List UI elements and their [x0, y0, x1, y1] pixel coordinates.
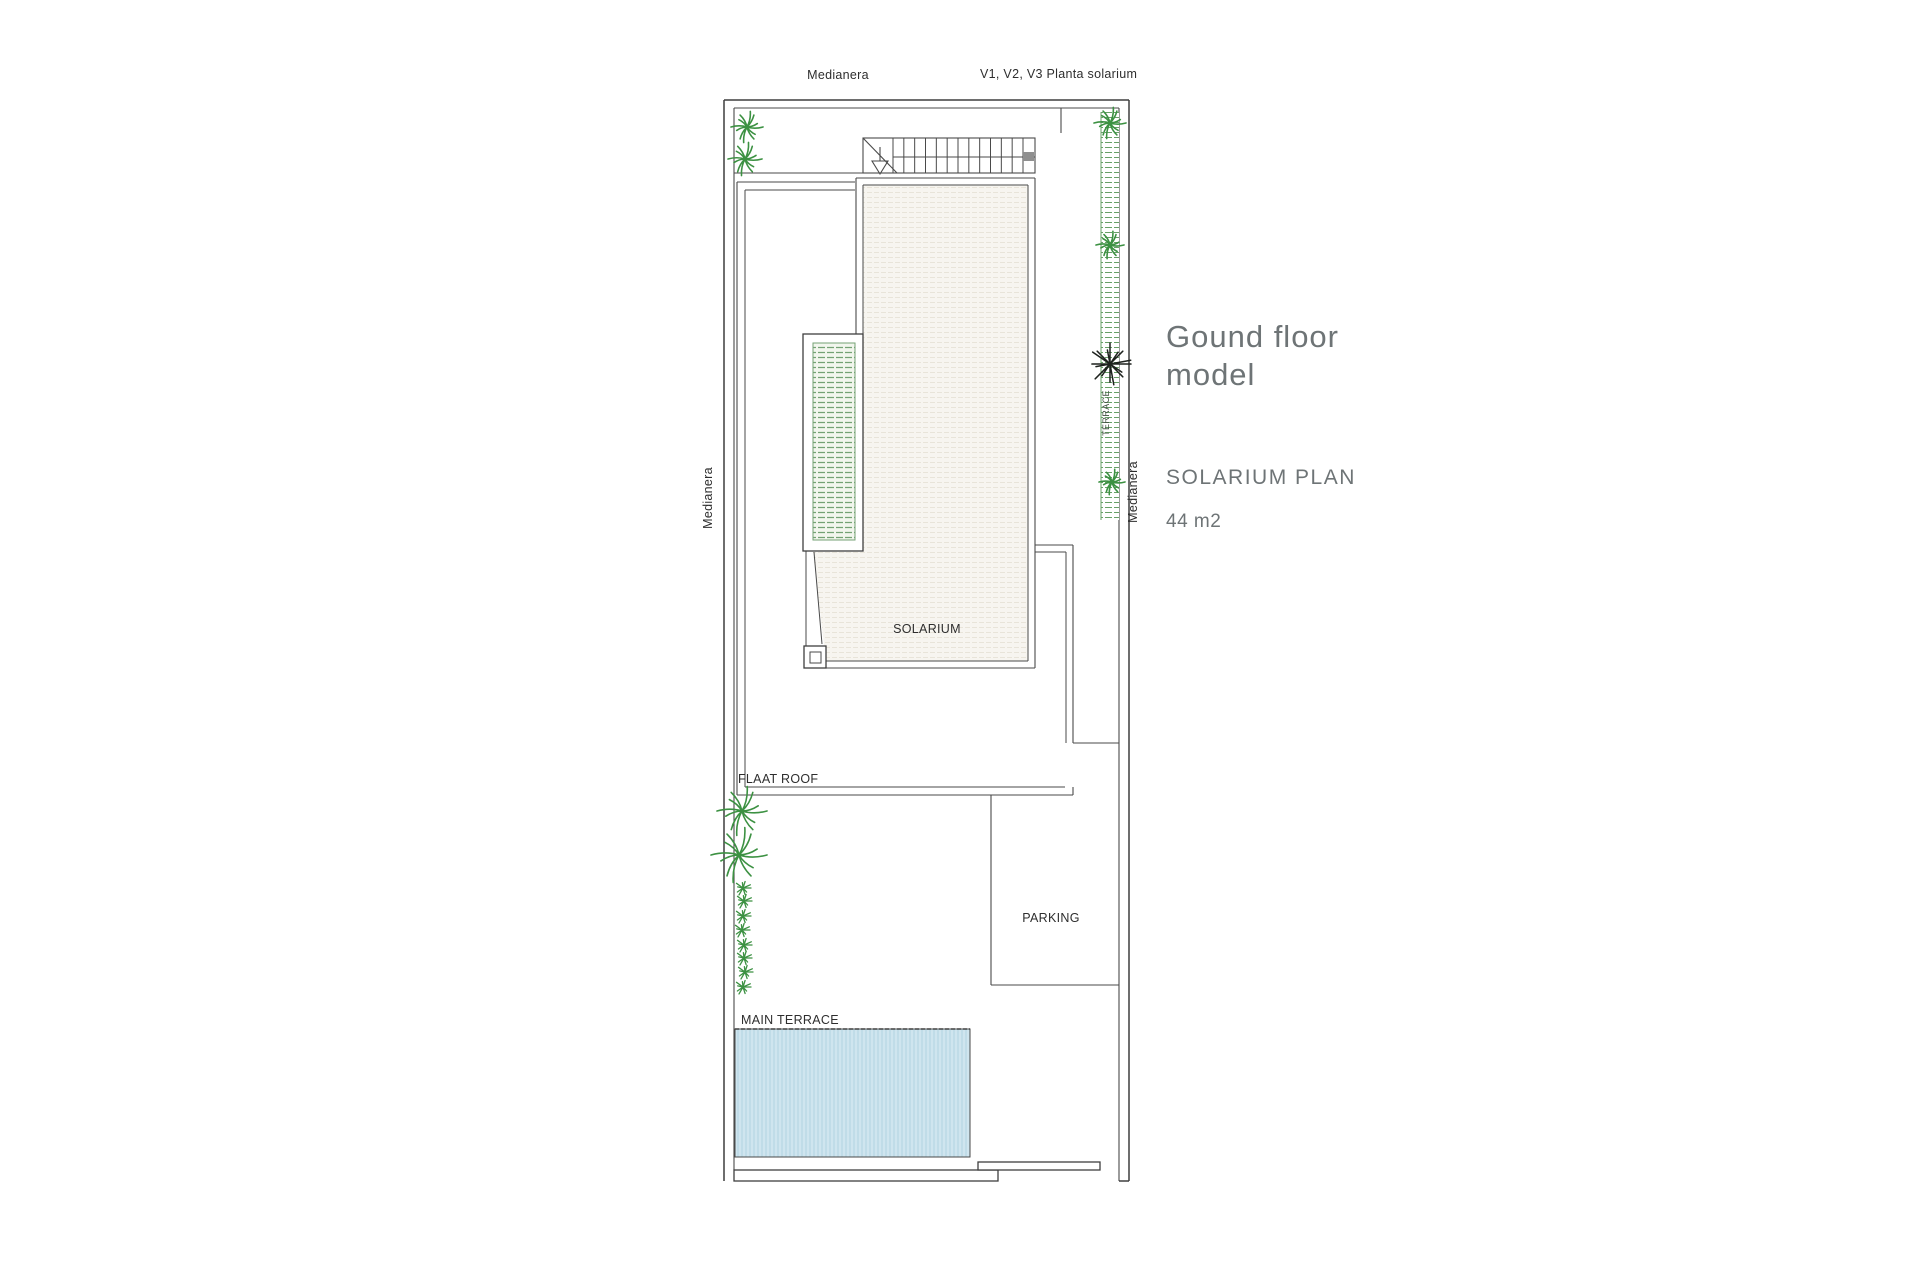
small-plant-icon [738, 939, 753, 952]
label-parking: PARKING [1022, 911, 1079, 925]
label-flat-roof: FLAAT ROOF [738, 772, 818, 786]
palm-plant-icon [731, 111, 763, 142]
page-title-line1: Gound floor [1166, 318, 1339, 356]
staircase [863, 138, 1035, 174]
small-plant-icon [736, 924, 751, 937]
page-title: Gound floor model [1166, 318, 1339, 394]
label-medianera-left: Medianera [701, 467, 715, 529]
label-windows: V1, V2, V3 Planta solarium [980, 67, 1137, 81]
label-solarium: SOLARIUM [893, 622, 961, 636]
side-terrace-strip [1101, 112, 1119, 520]
label-medianera-right: Medianera [1126, 461, 1140, 523]
swimming-pool [735, 1029, 970, 1157]
label-main-terrace: MAIN TERRACE [741, 1013, 839, 1027]
floor-plan-drawing: Medianera V1, V2, V3 Planta solarium Med… [0, 0, 1920, 1280]
parking-outline [991, 795, 1119, 985]
page-title-line2: model [1166, 356, 1339, 394]
floor-plan-page: Medianera V1, V2, V3 Planta solarium Med… [0, 0, 1920, 1280]
bottom-walls [734, 1162, 1100, 1181]
label-medianera-top: Medianera [807, 68, 869, 82]
label-terrace: TERRACE [1101, 390, 1111, 436]
small-plant-icon [737, 882, 752, 895]
small-plant-icon [738, 895, 753, 908]
stair-landing-mark [1023, 152, 1034, 161]
small-plant-icon [739, 966, 754, 979]
planter-box [803, 334, 863, 551]
stair-treads [893, 138, 1023, 173]
corner-column [804, 646, 826, 668]
small-plant-icon [737, 981, 752, 994]
plan-area-value: 44 m2 [1166, 511, 1221, 533]
small-plant-icon [738, 952, 753, 965]
palm-plant-icon [711, 828, 767, 883]
stair-direction-arrow [872, 161, 888, 174]
small-plant-icon [737, 910, 752, 923]
plan-subtitle: SOLARIUM PLAN [1166, 466, 1356, 490]
palm-plant-icon [728, 142, 762, 175]
